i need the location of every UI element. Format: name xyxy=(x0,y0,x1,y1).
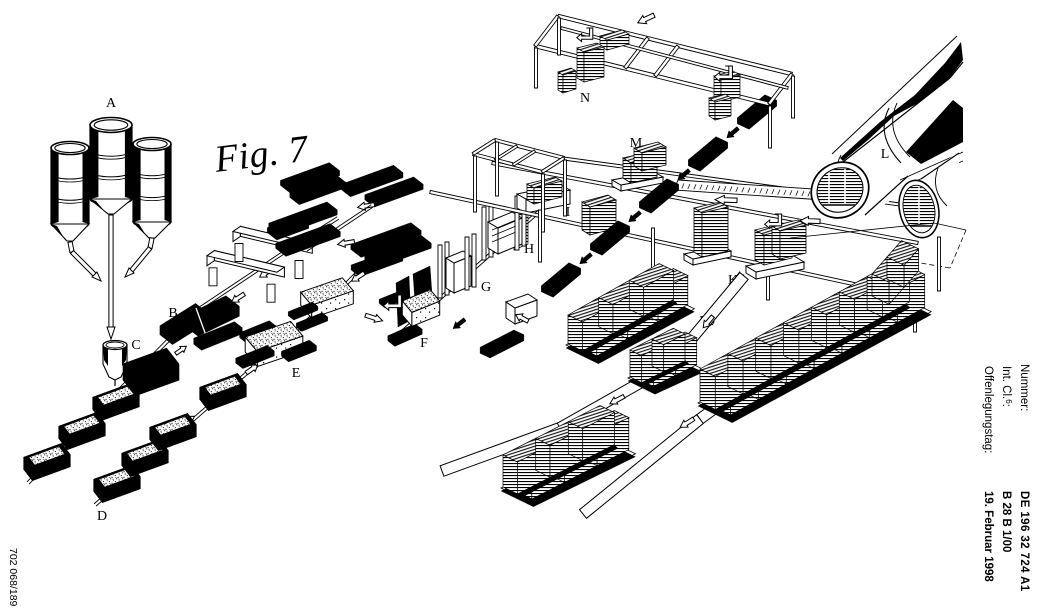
svg-text:702 068/189: 702 068/189 xyxy=(7,548,19,607)
svg-text:Offenlegungstag:: Offenlegungstag: xyxy=(982,366,994,453)
svg-text:C: C xyxy=(131,338,140,353)
svg-text:A: A xyxy=(106,96,117,111)
svg-text:E: E xyxy=(292,366,301,381)
svg-text:19. Februar 1998: 19. Februar 1998 xyxy=(982,491,994,582)
svg-text:M: M xyxy=(630,136,643,151)
svg-text:L: L xyxy=(881,147,890,162)
svg-text:Nummer:: Nummer: xyxy=(1018,364,1030,411)
svg-text:B: B xyxy=(168,306,177,321)
svg-text:G: G xyxy=(481,280,491,295)
svg-text:DE 196 32 724 A1: DE 196 32 724 A1 xyxy=(1018,491,1030,592)
svg-text:D: D xyxy=(97,509,107,524)
svg-text:F: F xyxy=(420,336,428,351)
svg-text:H: H xyxy=(524,242,534,257)
svg-text:B 28 B 1/00: B 28 B 1/00 xyxy=(1000,491,1012,552)
svg-text:N: N xyxy=(580,91,590,106)
